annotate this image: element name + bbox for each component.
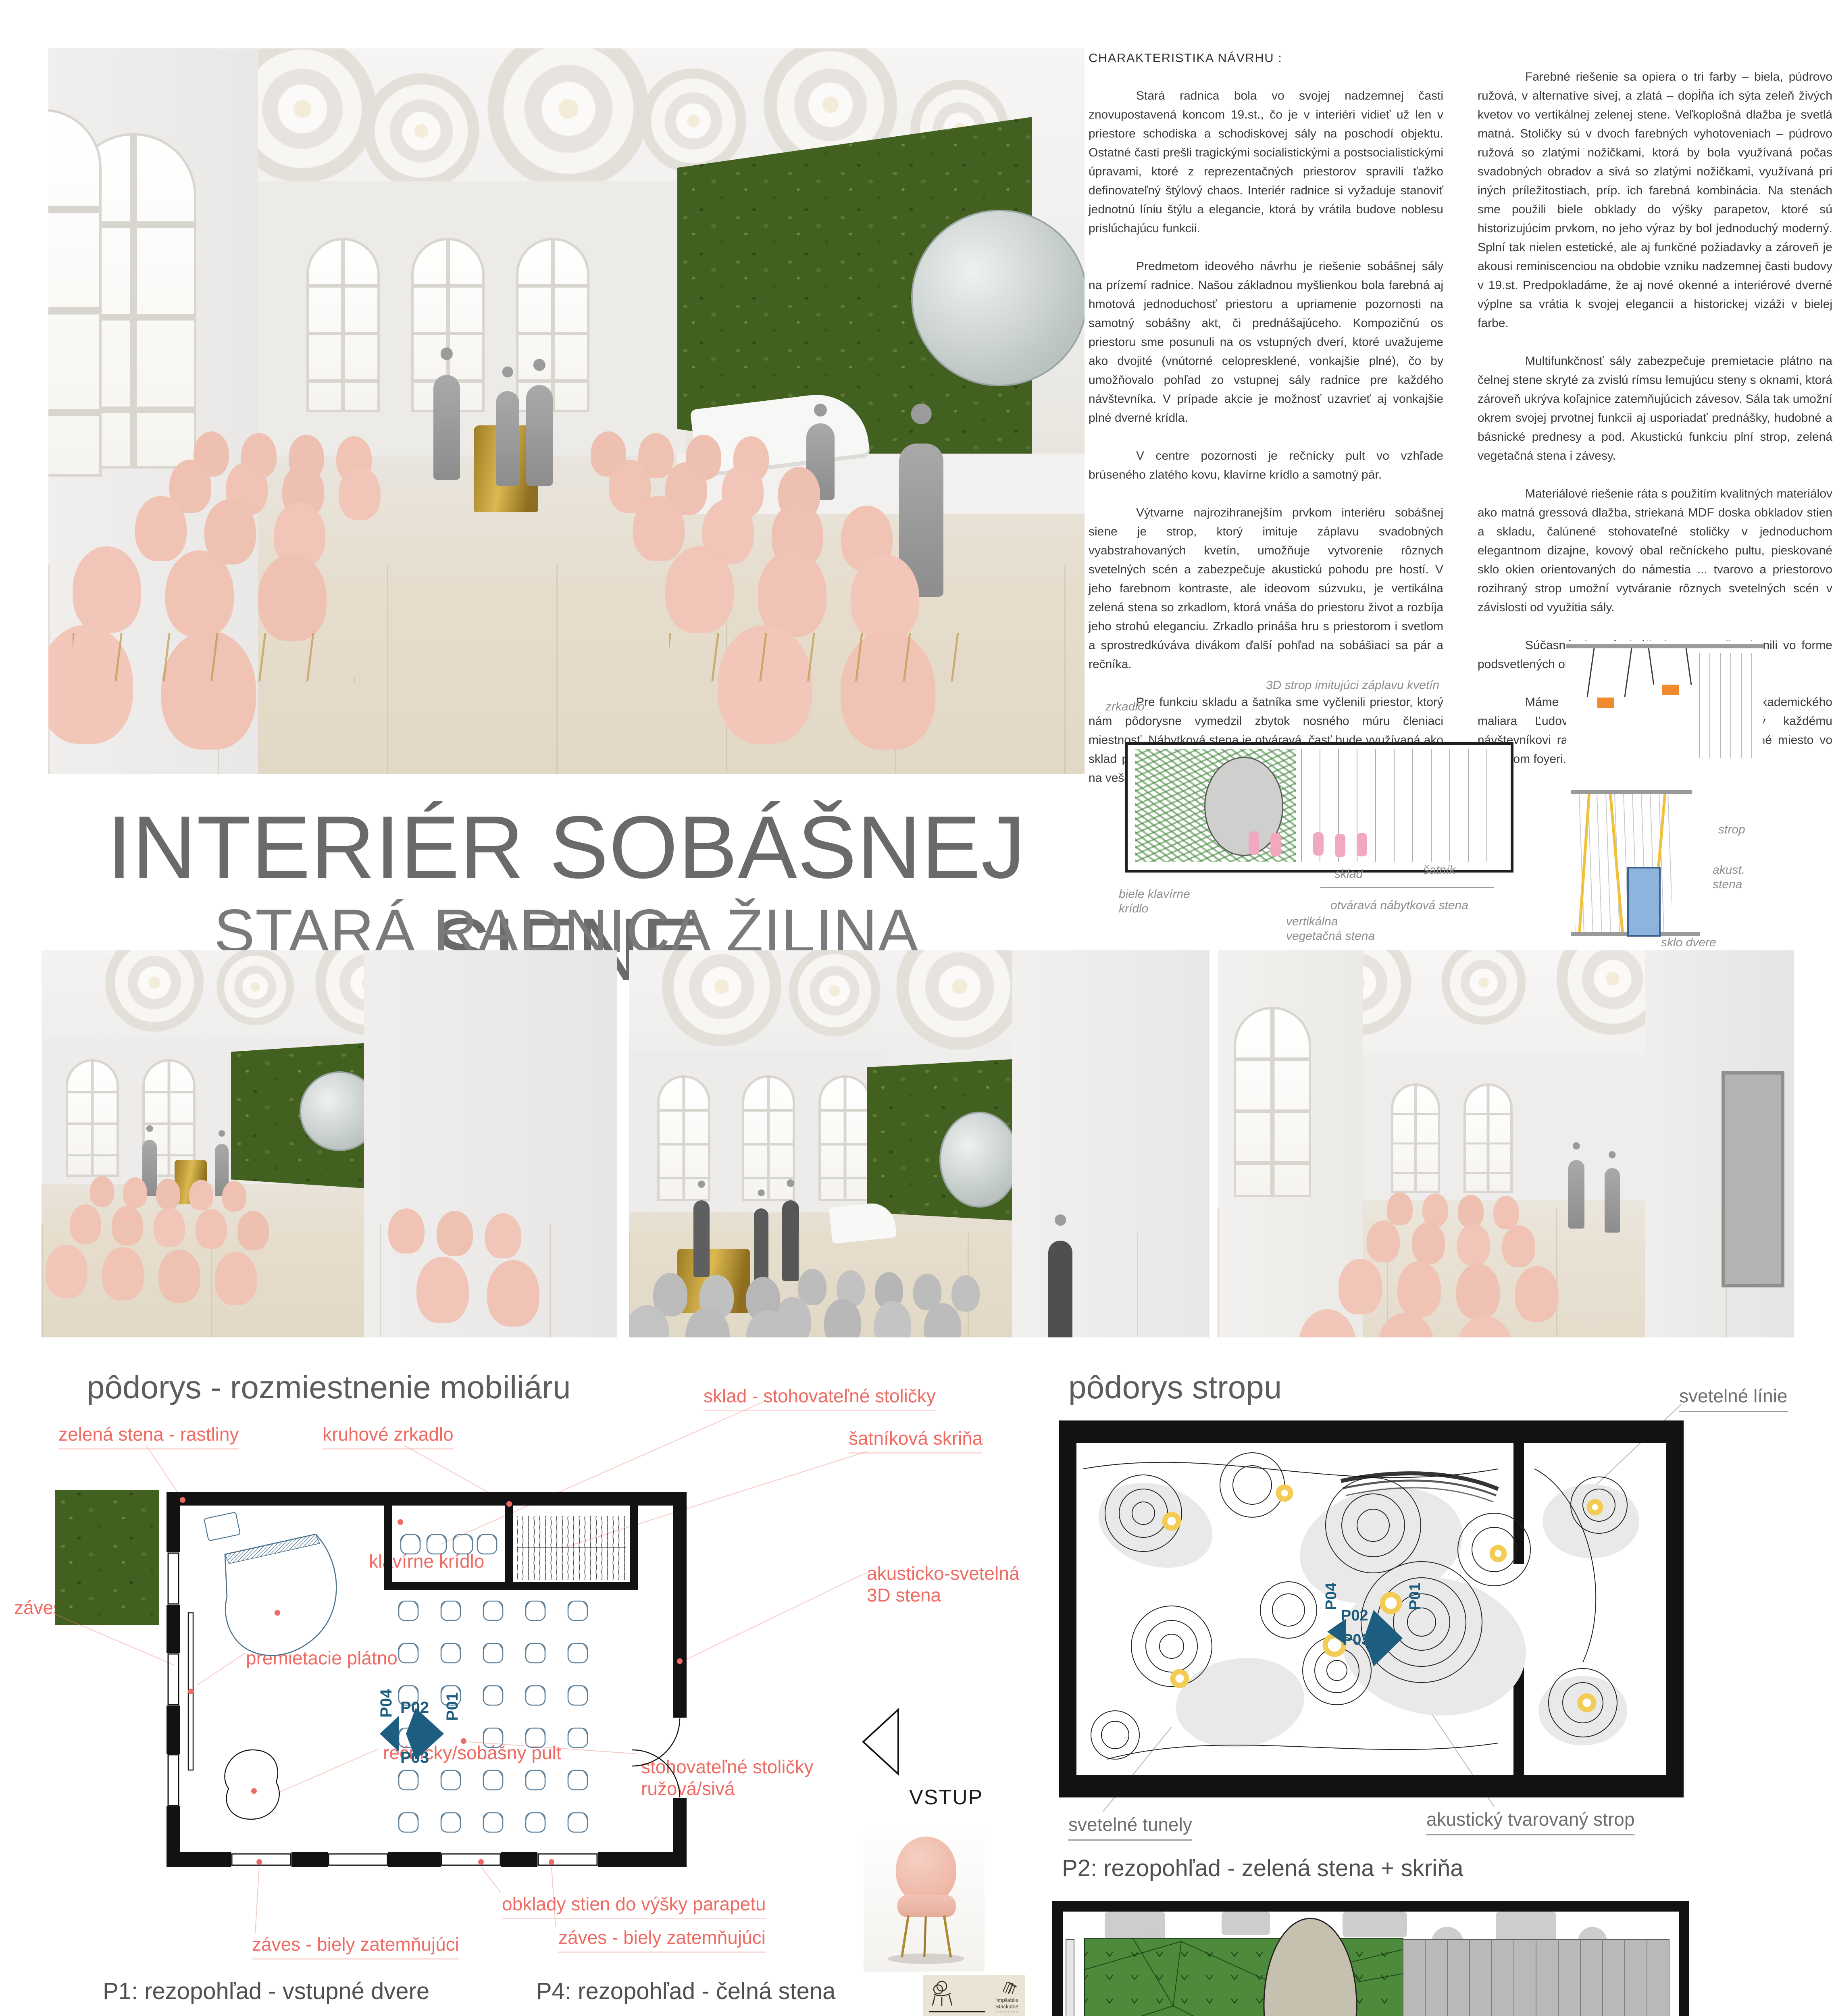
card-divider — [929, 2011, 985, 2012]
ceiling-swirl — [1435, 950, 1532, 1031]
label-sklad: sklad - stohovateľné stoličky — [704, 1385, 936, 1411]
svg-text:P01: P01 — [1407, 1583, 1424, 1610]
person-officiant — [433, 375, 460, 480]
paragraph: Predmetom ideového návrhu je riešenie so… — [1089, 257, 1443, 427]
characteristics-col-1: CHARAKTERISTIKA NÁVRHU : Stará radnica b… — [1089, 48, 1443, 806]
label-vstup: VSTUP — [909, 1785, 983, 1810]
chair-outline-icon — [930, 1981, 955, 2007]
sketch-note-strop3d: 3D strop imitujúci záplavu kvetín — [1266, 678, 1451, 693]
label-zaves-biely-2: záves - biely zatemňujúci — [558, 1926, 766, 1953]
floor — [629, 1233, 1209, 1337]
label-kruhove-zrkadlo: kruhové zrkadlo — [323, 1423, 454, 1450]
paragraph: V centre pozornosti je rečnícky pult vo … — [1089, 446, 1443, 484]
render-main-hall — [48, 48, 1085, 774]
presentation-board: { "board": { "title": "INTERIÉR SOBÁŠNEJ… — [0, 0, 1834, 2016]
sketch-note-satnik: šatník — [1423, 863, 1455, 877]
chair-row — [135, 496, 187, 561]
chair-row — [633, 496, 685, 561]
person — [215, 1144, 229, 1196]
wedding-podium — [175, 1160, 207, 1204]
label-svetelne-tunely: svetelné tunely — [1068, 1814, 1192, 1841]
sketch-mirror-circle — [1204, 757, 1283, 856]
chair-leg — [923, 1916, 926, 1957]
window — [1234, 1007, 1311, 1197]
window — [516, 238, 589, 412]
sketch-pendant — [1587, 648, 1632, 697]
render-hall-entrance — [1218, 950, 1794, 1337]
section-p1-heading: P1: rezopohľad - vstupné dvere — [103, 1978, 429, 2005]
label-satnikova-skrina: šatníková skriňa — [849, 1427, 983, 1454]
stackable-label-en: Stackable — [995, 2003, 1018, 2012]
label-svetelne-linie: svetelné línie — [1679, 1385, 1788, 1412]
section-p4-heading: P4: rezopohľad - čelná stena — [536, 1978, 835, 2005]
floor — [42, 1225, 617, 1337]
chair-shadow — [888, 1954, 964, 1964]
sketch-section-wall — [1571, 790, 1712, 937]
chair-legs — [669, 633, 976, 681]
sketch-top-bar — [1571, 790, 1692, 794]
ceiling-swirl — [887, 950, 1032, 1059]
chair-row — [46, 1245, 87, 1298]
chair-leg — [901, 1915, 910, 1958]
entrance-door-plan — [632, 1710, 898, 1797]
chair-row — [665, 546, 734, 633]
floor — [1218, 1208, 1794, 1337]
render-hall-pink — [42, 950, 617, 1337]
chair-row — [1387, 1192, 1413, 1225]
p2-side-slit — [1066, 1939, 1074, 2016]
sketch-dimension-line — [1320, 887, 1494, 888]
paragraph: Výtvarne najrozihranejším prvkom interié… — [1089, 503, 1443, 674]
person — [526, 385, 553, 486]
label-zaves-biely-1: záves - biely zatemňujúci — [252, 1933, 459, 1960]
sketch-pendant — [1648, 648, 1692, 685]
sketch-panel-lines — [1301, 749, 1503, 862]
paragraph: Multifunkčnosť sály zabezpečuje premieta… — [1478, 352, 1832, 465]
window — [818, 1075, 872, 1201]
sketch-note-strop-b: strop — [1718, 823, 1745, 837]
green-wall-photo-swatch — [55, 1490, 159, 1625]
pult-plan — [225, 1750, 279, 1819]
sketch-orange-light — [1662, 685, 1679, 695]
paragraph: Stará radnica bola vo svojej nadzemnej č… — [1089, 86, 1443, 238]
sketch-note-zrkadlo: zrkadlo — [1105, 700, 1145, 714]
floor-plan-svg: P04 P02 P03 P01 — [158, 1492, 904, 1884]
sketch-note-sklo: sklo dvere — [1661, 935, 1716, 950]
window — [1463, 1083, 1513, 1193]
svg-text:P02: P02 — [400, 1699, 429, 1716]
person-seated — [806, 423, 835, 500]
label-obklady: obklady stien do výšky parapetu — [502, 1893, 766, 1919]
chair-grid — [399, 1601, 587, 1832]
person — [496, 391, 519, 486]
ceiling-swirl — [98, 950, 211, 1039]
chair-legs — [73, 633, 355, 681]
label-akusticky-strop: akustický tvarovaný strop — [1426, 1808, 1634, 1835]
sketch-orange-light — [1597, 698, 1614, 708]
characteristics-heading: CHARAKTERISTIKA NÁVRHU : — [1089, 48, 1443, 67]
render-hall-grey — [629, 950, 1209, 1337]
sketch-note-sklad: sklad — [1334, 867, 1363, 881]
chair-back — [896, 1837, 956, 1903]
section-p2-svg — [1052, 1901, 1689, 2016]
chair-row — [90, 1176, 114, 1207]
sketch-section-lights — [1566, 641, 1763, 762]
window — [48, 109, 102, 477]
label-zelena-stena: zelená stena - rastliny — [58, 1423, 239, 1450]
svg-text:P04: P04 — [1323, 1583, 1340, 1610]
round-mirror — [911, 210, 1085, 386]
chair-row — [416, 1257, 469, 1323]
paragraph: Farebné riešenie sa opiera o tri farby –… — [1478, 67, 1832, 333]
window — [66, 1059, 119, 1177]
ceiling-swirl — [653, 950, 790, 1055]
chair-row — [70, 1204, 101, 1244]
sketch-pink-chairs — [1249, 831, 1259, 855]
ceiling-swirl — [355, 65, 488, 198]
chair-row — [388, 1208, 425, 1254]
section-markers: P04 P02 P03 P01 — [377, 1689, 461, 1766]
svg-text:P02: P02 — [1341, 1607, 1368, 1624]
chair-product-photo — [864, 1820, 985, 1972]
sketch-curtain-lines — [1699, 653, 1759, 758]
sketch-note-otvarava: otváravá nábytková stena — [1330, 898, 1508, 913]
svg-text:P04: P04 — [377, 1689, 395, 1718]
chair-row — [798, 1269, 826, 1305]
chair-spec-card: Impilabile Stackable KELLY C BASIC OKELC… — [923, 1975, 1025, 2016]
plan-strop-heading: pôdorys stropu — [1068, 1369, 1282, 1406]
storage-room — [401, 1516, 626, 1580]
chair-leg — [943, 1915, 952, 1958]
sketch-note-vegetacna: vertikálna vegetačná stena — [1286, 914, 1375, 943]
stackable-icon — [1001, 1980, 1018, 1996]
section-p2-heading: P2: rezopohľad - zelená stena + skriňa — [1062, 1855, 1463, 1882]
chair-seat — [897, 1895, 956, 1917]
ceiling-plan-svg: P04 P02 P03 P01 — [1059, 1420, 1684, 1797]
sketch-note-klavir: biele klavírne krídlo — [1119, 887, 1190, 916]
person — [142, 1140, 157, 1196]
paragraph: Materiálové riešenie ráta s použitím kva… — [1478, 484, 1832, 617]
sketch-glass-door — [1627, 867, 1661, 937]
svg-text:P03: P03 — [400, 1749, 429, 1766]
round-mirror — [939, 1112, 1019, 1208]
sketch-note-akust: akust. stena — [1713, 863, 1745, 892]
svg-text:P01: P01 — [443, 1692, 461, 1721]
ceiling-swirl — [211, 950, 300, 1031]
window — [306, 238, 380, 412]
plan-mobiliar-heading: pôdorys - rozmiestnenie mobiliáru — [87, 1369, 571, 1406]
p2-wardrobe — [1403, 1939, 1669, 2016]
chair-row — [1339, 1259, 1382, 1314]
grand-piano-plan — [204, 1512, 336, 1656]
sketch-ceiling-bar — [1566, 644, 1763, 648]
sketch-elevation — [1125, 742, 1513, 873]
chair-row — [73, 546, 141, 633]
chair-row — [1367, 1220, 1400, 1262]
ceiling-swirl — [782, 950, 887, 1043]
window — [1391, 1083, 1440, 1193]
svg-text:P03: P03 — [1343, 1631, 1370, 1648]
